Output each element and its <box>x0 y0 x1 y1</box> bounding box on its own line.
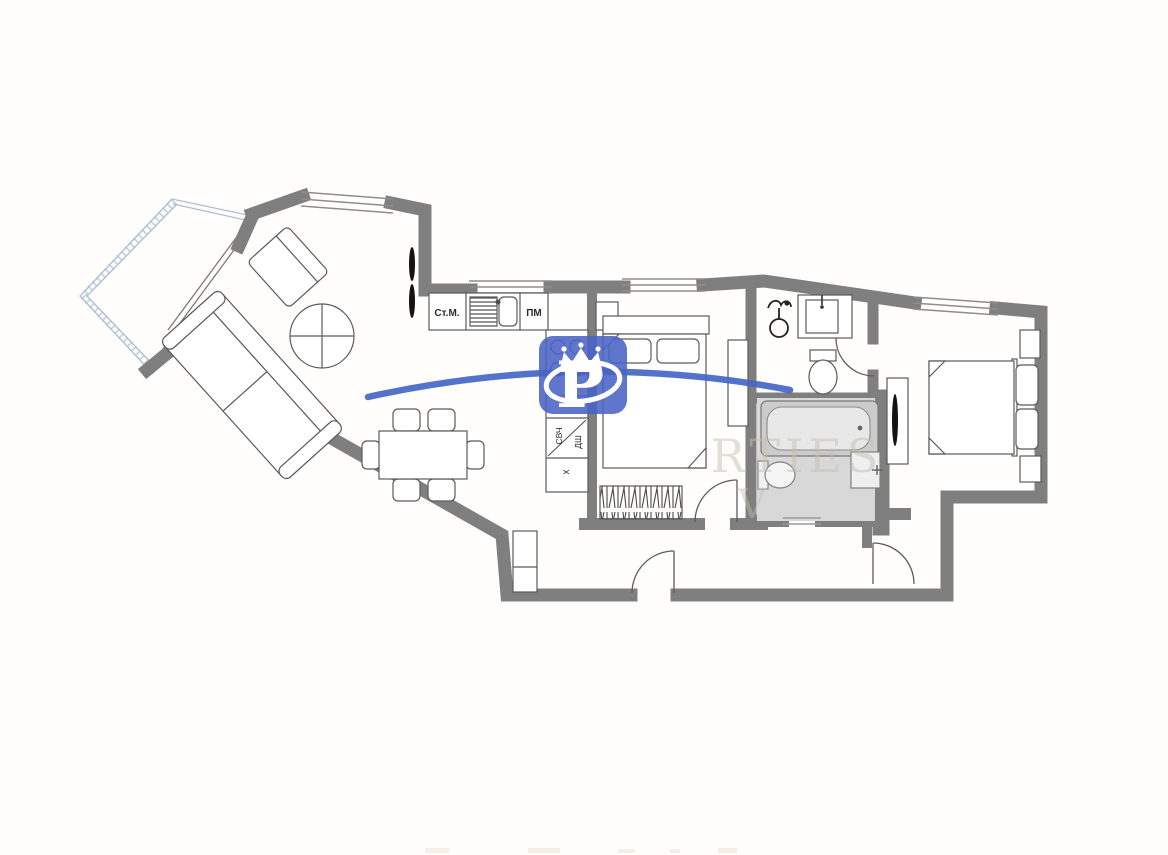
pillow <box>1016 409 1038 449</box>
balcony-glazing-ticks <box>83 201 174 371</box>
bedroom1-door <box>695 480 737 522</box>
scan-artifacts <box>425 848 737 853</box>
washing-machine-label: Ст.М. <box>434 308 459 319</box>
dining-chair <box>428 479 455 501</box>
window-bedroom2 <box>913 297 998 315</box>
pillow <box>1016 365 1038 405</box>
watermark-text-2: V <box>737 482 768 528</box>
entrance-door-arc <box>632 551 674 593</box>
dining-chair <box>393 409 420 431</box>
wc-toilet <box>809 350 837 394</box>
balcony-glazing-top-1 <box>172 199 252 216</box>
microwave-label: СВЧ <box>554 427 564 444</box>
scanned-floorplan-page: Ст.М. ПМ СВЧ ДШ х <box>0 0 1168 855</box>
wall-top-left-diagonal <box>252 196 303 214</box>
dishwasher-label: ПМ <box>526 308 542 319</box>
floorplan-drawing: Ст.М. ПМ СВЧ ДШ х <box>0 0 1168 855</box>
kitchen-sink <box>470 297 517 326</box>
dining-table <box>379 431 467 479</box>
corridor-door <box>873 543 914 584</box>
wall-top-step <box>391 203 471 290</box>
living-room <box>160 226 484 501</box>
dining-chair <box>428 409 455 431</box>
wardrobe-mirror <box>892 394 898 446</box>
wc <box>768 295 852 394</box>
radiator-icon <box>409 247 415 318</box>
watermark-logo: P <box>539 336 627 423</box>
hallway <box>513 531 537 592</box>
wardrobe-hatched <box>600 486 682 519</box>
window-living-room <box>301 192 393 213</box>
wc-washbasin <box>806 295 838 333</box>
bed1-headboard <box>603 316 709 334</box>
bed2-body <box>929 361 1014 454</box>
corridor-door-arc <box>873 543 914 584</box>
towel-warmer-icon <box>768 300 791 337</box>
bedroom-2 <box>887 330 1041 482</box>
nightstand <box>1020 456 1041 482</box>
fridge-label: х <box>561 470 572 475</box>
logo-letter: P <box>556 348 604 423</box>
watermark-text: RTIES <box>711 429 884 483</box>
dining-chair <box>466 441 484 469</box>
nightstand <box>1020 330 1040 358</box>
dining-chair <box>362 441 380 469</box>
oven-label: ДШ <box>573 435 583 449</box>
balcony-glazing-outer <box>80 199 172 374</box>
window-kitchen <box>469 281 552 293</box>
window-bedroom1 <box>622 279 705 291</box>
armchair <box>247 226 329 308</box>
coffee-table <box>290 304 354 368</box>
entrance-door <box>632 551 674 593</box>
pillow <box>657 339 699 363</box>
wall-balcony-stub-top <box>239 217 252 246</box>
dining-chair <box>393 479 420 501</box>
bedroom1-door-arc <box>695 480 737 522</box>
hallway-cabinet <box>513 531 537 592</box>
faucet-icon <box>496 300 500 304</box>
